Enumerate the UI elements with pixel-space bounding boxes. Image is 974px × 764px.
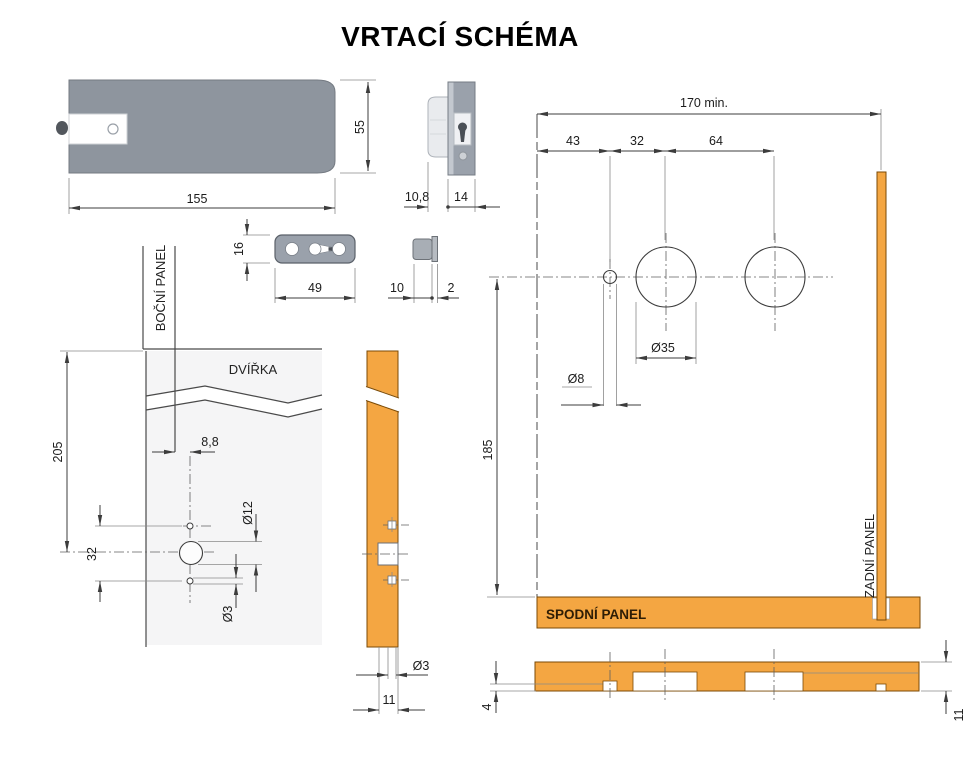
screw-hole-top [187,523,193,529]
strike-plate-slot-end [329,247,333,251]
screw-hole-bottom [187,578,193,584]
dim-bushing-flange: 2 [448,281,455,295]
spindle-hole [180,542,203,565]
bottom-panel-edge-view: 4 11 [480,640,966,721]
back-panel [877,172,886,620]
dim-lock-height: 55 [353,120,367,134]
dim-edge-screw-hole: Ø3 [413,659,430,673]
lock-side-plate-edge [449,83,454,175]
drilling-schema-page: VRTACÍ SCHÉMA 55 155 10,8 [0,0,974,764]
door-label: DVÍŘKA [229,362,278,377]
lock-side-body [428,97,448,157]
back-panel-notch [876,684,886,691]
back-panel-label: ZADNÍ PANEL [862,514,877,598]
lock-front-view: 55 155 [56,80,376,214]
bushing-flange [432,237,438,262]
dim-32: 32 [630,134,644,148]
lock-side-view: 10,8 14 [404,82,500,212]
strike-plate-hole-left [286,243,299,256]
bushing-body [413,239,432,260]
dim-top-to-center: 205 [51,442,65,463]
strike-plate-view: 16 49 [232,219,355,303]
page-title: VRTACÍ SCHÉMA [341,21,579,52]
dim-edge-hole-offset: 11 [383,693,396,707]
dim-hole-spacing: 32 [85,547,99,561]
lock-knob [56,121,68,135]
drilling-schema-svg: VRTACÍ SCHÉMA 55 155 10,8 [0,0,974,764]
dim-lock-depth: 14 [454,190,468,204]
side-panel-label: BOČNÍ PANEL [153,245,168,331]
dim-lock-protrusion: 10,8 [405,190,429,204]
dim-center-height: 185 [481,440,495,461]
strike-plate-slot-hole [309,243,321,255]
dim-lock-width: 155 [187,192,208,206]
dim-64: 64 [709,134,723,148]
dim-panel-thickness: 11 [952,708,966,721]
door-front-view: BOČNÍ PANEL DVÍŘKA 8,8 205 32 Ø12 Ø3 [51,245,322,647]
dim-bushing-length: 10 [390,281,404,295]
dim-spindle-hole: Ø12 [241,501,255,525]
dim-drill-depth: 4 [480,703,494,710]
strike-plate-hole-right [333,243,346,256]
bottom-panel-edge [535,662,919,691]
bottom-panel-label: SPODNÍ PANEL [546,607,646,622]
bushing-view: 10 2 [388,237,459,304]
dim-plate-height: 16 [232,242,246,256]
dim-cup-hole: Ø35 [651,341,675,355]
door-edge-view: Ø3 11 [353,351,429,714]
dim-min-width: 170 min. [680,96,728,110]
drill-layout-view: 170 min. 43 32 64 Ø8 Ø35 185 [481,96,920,628]
dim-edge-offset: 8,8 [201,435,218,449]
dim-plate-width: 49 [308,281,322,295]
dim-screw-hole: Ø3 [221,606,235,623]
lock-side-screw [459,152,467,160]
dim-cable-hole: Ø8 [568,372,585,386]
dim-43: 43 [566,134,580,148]
